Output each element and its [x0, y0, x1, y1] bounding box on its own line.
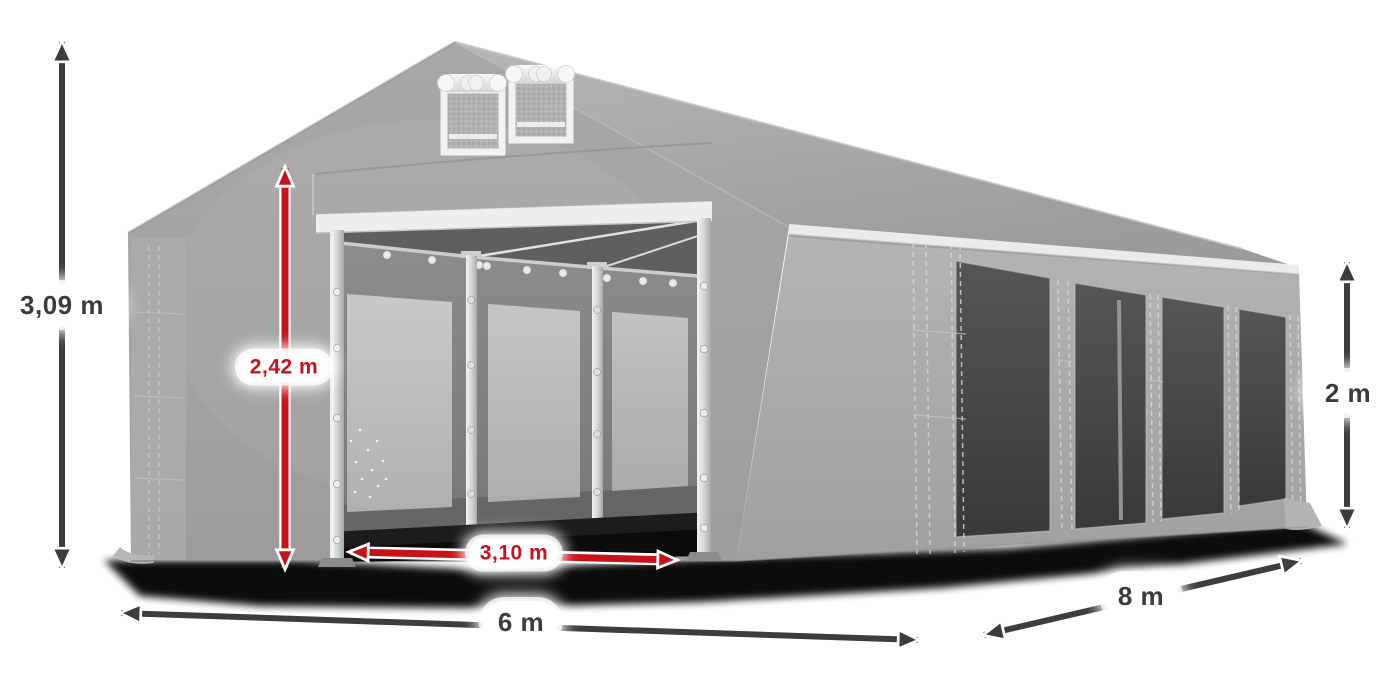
- label-total-height: 3,09 m: [5, 284, 119, 326]
- label-front-width: 6 m: [483, 601, 559, 643]
- tent-side-wall: [736, 233, 1322, 561]
- label-side-length: 8 m: [1103, 575, 1179, 617]
- interior-window: [612, 312, 688, 491]
- label-entrance-height: 2,42 m: [239, 353, 329, 382]
- side-window: [1239, 309, 1286, 506]
- label-wall-height: 2 m: [1310, 372, 1386, 414]
- gable-vent-right: [506, 65, 575, 140]
- side-window: [1075, 283, 1146, 529]
- entrance-interior: [331, 219, 710, 562]
- side-window: [956, 261, 1050, 537]
- label-entrance-width: 3,10 m: [469, 539, 559, 568]
- interior-window: [488, 304, 580, 502]
- tent-illustration: [0, 0, 1400, 700]
- gable-vent-left: [438, 74, 507, 152]
- side-window: [1162, 297, 1224, 519]
- tent-dimension-diagram: 3,09 m 2,42 m 3,10 m 6 m 8 m 2 m: [0, 0, 1400, 700]
- front-corner-column: [113, 238, 186, 564]
